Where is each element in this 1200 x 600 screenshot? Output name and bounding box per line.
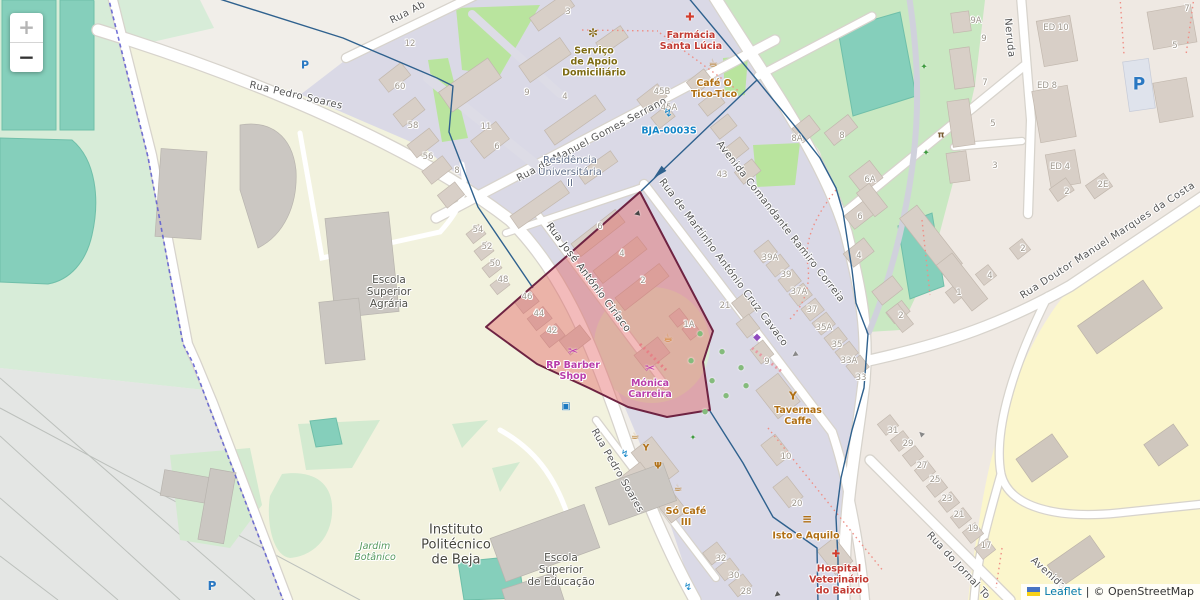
ukraine-flag-icon [1027,587,1040,596]
attribution-bar: Leaflet | © OpenStreetMap [1021,584,1200,600]
map-canvas [0,0,1200,600]
zoom-control: + − [10,13,43,72]
osm-credit: © OpenStreetMap [1093,585,1194,598]
attribution-separator: | [1086,585,1090,598]
leaflet-link[interactable]: Leaflet [1044,585,1081,598]
leaflet-map[interactable]: Rua Pedro SoaresRua Pedro SoaresRua AbRu… [0,0,1200,600]
zoom-out-button[interactable]: − [10,43,43,72]
zoom-in-button[interactable]: + [10,13,43,43]
